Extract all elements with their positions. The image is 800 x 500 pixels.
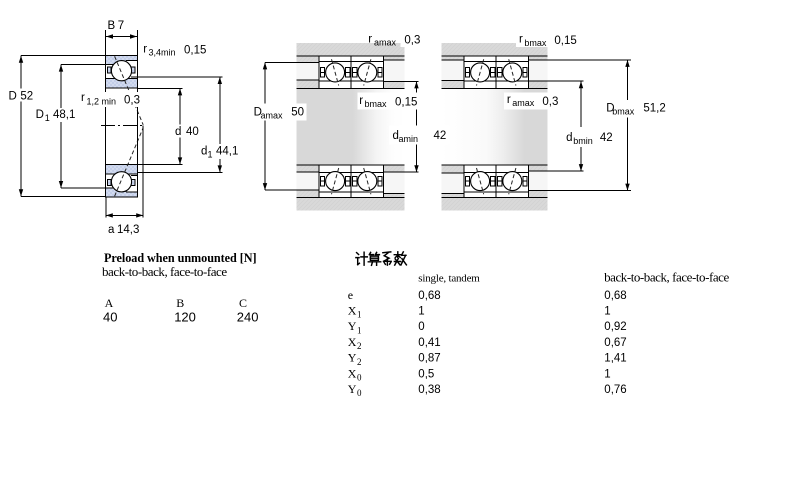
svg-text:0,68: 0,68 [604,290,626,302]
svg-text:0: 0 [418,321,424,333]
svg-text:r: r [81,92,85,104]
svg-text:0,87: 0,87 [418,353,440,365]
svg-text:0: 0 [357,388,362,398]
svg-text:3,4min: 3,4min [149,48,176,58]
svg-text:Y: Y [348,319,357,333]
svg-text:0,67: 0,67 [604,337,626,349]
svg-text:44,1: 44,1 [216,146,238,158]
svg-text:50: 50 [291,106,304,118]
svg-text:14,3: 14,3 [117,224,139,236]
svg-text:back-to-back, face-to-face: back-to-back, face-to-face [604,269,729,284]
svg-text:42: 42 [434,130,447,142]
svg-text:240: 240 [237,309,259,324]
svg-text:X: X [348,335,357,349]
svg-text:r: r [359,95,363,107]
svg-text:Y: Y [348,382,357,396]
svg-text:1: 1 [418,306,424,318]
svg-text:1,2 min: 1,2 min [87,97,117,107]
svg-text:120: 120 [174,309,196,324]
svg-text:r: r [368,33,372,45]
svg-text:7: 7 [118,20,124,32]
svg-text:amax: amax [374,37,397,47]
svg-text:bmin: bmin [573,136,593,146]
svg-text:0,15: 0,15 [184,45,206,57]
svg-text:2: 2 [357,341,362,351]
svg-text:r: r [507,94,511,106]
svg-text:40: 40 [103,309,117,324]
svg-text:0,5: 0,5 [418,368,434,380]
svg-text:1: 1 [604,368,610,380]
svg-text:48,1: 48,1 [53,109,75,121]
svg-text:d: d [566,132,572,144]
svg-text:amin: amin [399,134,419,144]
svg-text:1,41: 1,41 [604,353,626,365]
svg-text:0: 0 [357,373,362,383]
svg-text:X: X [348,304,357,318]
svg-text:C: C [239,296,247,310]
svg-text:1: 1 [45,113,50,123]
svg-text:42: 42 [600,132,613,144]
svg-text:single, tandem: single, tandem [418,272,480,284]
svg-text:D: D [9,91,17,103]
svg-text:0,38: 0,38 [418,384,440,396]
svg-text:d: d [201,146,207,158]
svg-text:A: A [105,296,114,310]
svg-text:1: 1 [208,150,213,160]
svg-text:X: X [348,366,357,380]
svg-text:e: e [348,288,353,302]
svg-text:40: 40 [186,126,199,138]
svg-text:1: 1 [357,310,362,320]
svg-text:amax: amax [512,98,535,108]
svg-text:amax: amax [261,110,284,120]
svg-text:Preload when unmounted [N]: Preload when unmounted [N] [104,251,257,265]
svg-text:D: D [36,109,44,121]
svg-text:1: 1 [357,325,362,335]
svg-text:1: 1 [604,306,610,318]
svg-text:bmax: bmax [524,38,547,48]
svg-text:bmax: bmax [612,106,635,116]
svg-text:0,68: 0,68 [418,290,440,302]
svg-text:0,41: 0,41 [418,337,440,349]
svg-text:0,3: 0,3 [124,95,140,107]
svg-text:a: a [108,224,115,236]
svg-text:0,15: 0,15 [554,35,576,47]
svg-text:51,2: 51,2 [643,102,665,114]
svg-text:0,92: 0,92 [604,321,626,333]
svg-text:B: B [108,20,116,32]
svg-text:Y: Y [348,351,357,365]
svg-text:d: d [175,126,181,138]
svg-text:0,76: 0,76 [604,384,626,396]
svg-text:0,3: 0,3 [404,34,420,46]
svg-text:B: B [176,296,184,310]
svg-text:r: r [143,44,147,56]
svg-text:52: 52 [20,91,33,103]
svg-text:bmax: bmax [365,99,388,109]
svg-text:0,3: 0,3 [542,96,558,108]
svg-text:back-to-back, face-to-face: back-to-back, face-to-face [102,264,227,279]
svg-text:0,15: 0,15 [395,97,417,109]
svg-text:2: 2 [357,357,362,367]
svg-text:r: r [519,33,523,45]
